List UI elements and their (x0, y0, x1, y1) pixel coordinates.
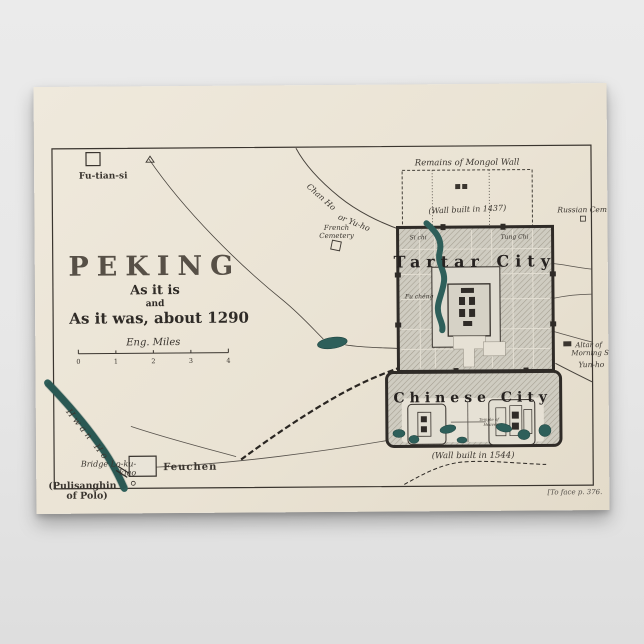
road-east-1 (553, 294, 592, 298)
altar-morning-sun-symbol (563, 341, 571, 346)
road-northeast (552, 263, 592, 269)
label-yun-ho: Yun-ho (578, 360, 604, 369)
label-bridge-1: Bridge Lo-ku- (80, 459, 137, 468)
label-chinese-city: Chinese City (393, 389, 552, 406)
label-temple-heaven-2: Heaven (482, 422, 499, 427)
temple-heaven-building-2 (512, 423, 519, 430)
label-french-cemetery-2: Cemetery (319, 232, 355, 240)
map-subtitle-1: As it is (129, 283, 180, 298)
label-russian-cem: Russian Cem. (556, 205, 609, 214)
label-wall-built-north: (Wall built in 1437) (428, 203, 506, 215)
road-west (131, 426, 236, 458)
temple-heaven-building-1 (512, 412, 519, 419)
bridge-point-marker (131, 481, 135, 485)
label-remains-mongol-wall: Remains of Mongol Wall (414, 158, 520, 169)
label-fu-cheng: Fu chéng (404, 293, 434, 300)
scale-tick-1: 1 (114, 357, 118, 365)
label-tartar-city: Tartar City (393, 251, 556, 271)
fu-tian-si-temple-symbol (86, 153, 100, 166)
scale-tick-4: 4 (226, 357, 230, 365)
label-altar-1: Altar of (574, 341, 603, 349)
railway-line (240, 368, 398, 459)
label-tung-chi: Tung Chi (501, 234, 529, 241)
scale-tick-0: 0 (76, 358, 80, 366)
scale-tick-3: 3 (189, 357, 193, 365)
label-altar-2: Morning Sun (570, 349, 609, 357)
ruin-symbol-2 (462, 184, 467, 189)
footnote-to-face-page: [To face p. 376. (547, 488, 602, 496)
label-fu-tian-si: Fu-tian-si (79, 171, 128, 181)
map-subtitle-2: and (146, 299, 165, 309)
label-wall-built-south: (Wall built in 1544) (432, 450, 515, 462)
ruin-symbol-1 (455, 184, 460, 189)
label-si-chi: Si chi (410, 234, 427, 241)
russian-cemetery-symbol (580, 216, 585, 221)
label-chan-ho: Chan Ho (305, 182, 338, 212)
road-south-dashed (404, 461, 546, 485)
map-title: PEKING (68, 251, 241, 283)
scale-bar (78, 349, 228, 354)
peking-map: PEKING As it is and As it was, about 129… (34, 83, 610, 514)
label-bridge-2: kiao (119, 468, 136, 477)
mongol-wall-outline (402, 170, 532, 228)
temple-building-1 (421, 416, 427, 422)
open-quarter (483, 342, 505, 356)
label-french-cemetery-1: French (323, 224, 349, 232)
scale-tick-2: 2 (151, 357, 155, 365)
temple-building-2 (421, 426, 427, 432)
label-feuchen: Feuchen (163, 462, 217, 473)
map-subtitle-3: As it was, about 1290 (68, 309, 249, 328)
label-hwan-ho: Hwan Ho (63, 407, 111, 464)
french-cemetery-symbol (331, 240, 342, 251)
map-poster: PEKING As it is and As it was, about 129… (34, 83, 610, 514)
label-pulisanghin-2: of Polo) (66, 490, 107, 501)
scale-label: Eng. Miles (125, 337, 180, 348)
stream-lake-to-city (345, 344, 398, 348)
